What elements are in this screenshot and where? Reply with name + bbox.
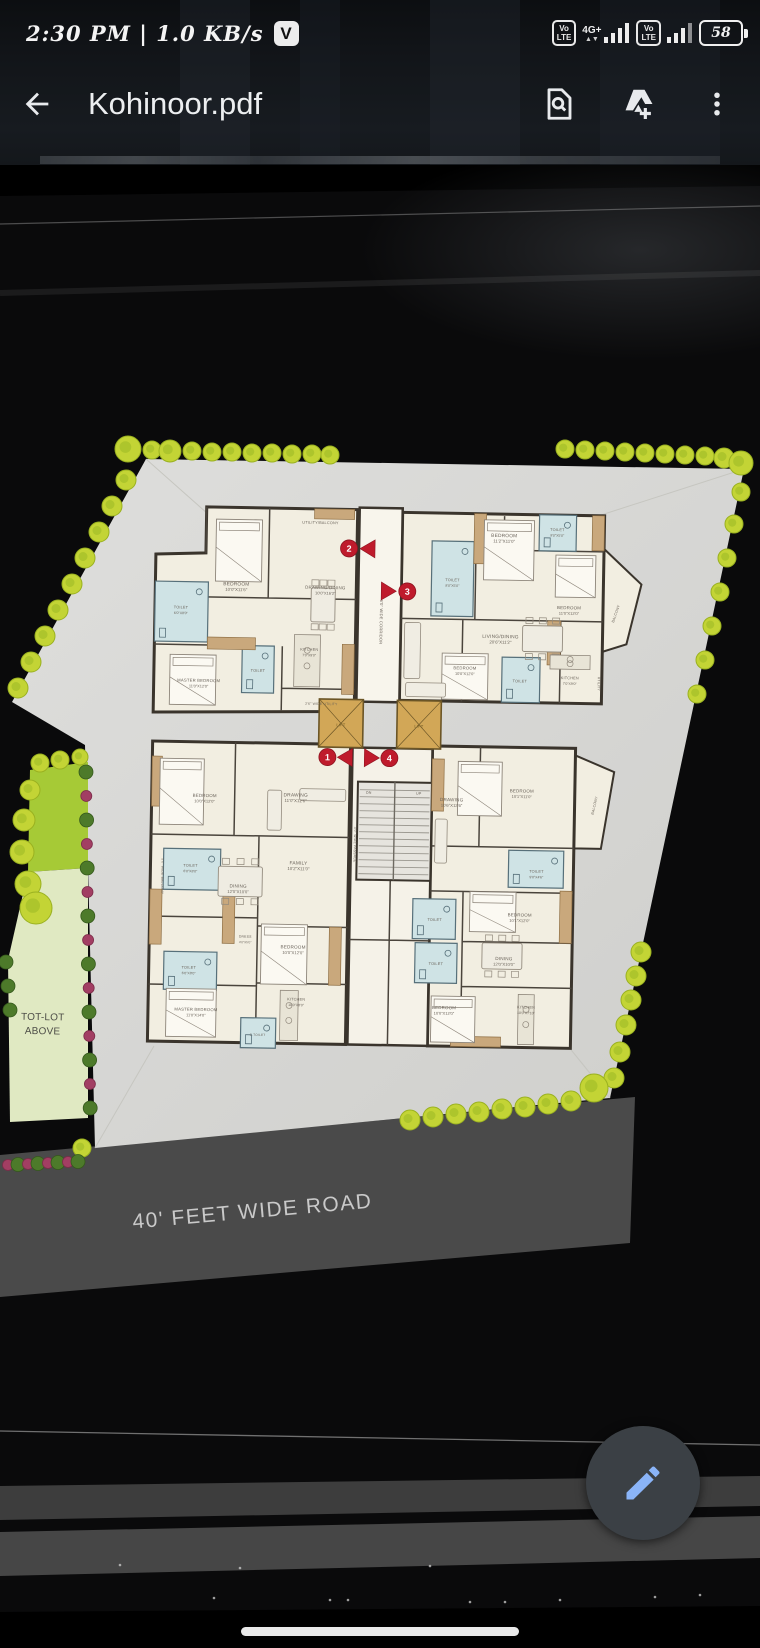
bush-icon: [3, 1003, 17, 1017]
flat-number: 4: [387, 753, 392, 763]
room-label: BEDROOM: [510, 788, 534, 793]
dimension-label: 10'0"X7'10": [517, 1011, 536, 1015]
tree-icon: [519, 1101, 528, 1110]
tree-icon: [146, 445, 154, 453]
flat-number: 2: [346, 544, 351, 554]
bush-icon: [82, 887, 93, 898]
wardrobe-strip: [559, 891, 572, 943]
dining-table-icon: [522, 625, 562, 652]
tree-icon: [706, 621, 714, 629]
tree-icon: [93, 526, 102, 535]
room-label: BEDROOM: [280, 944, 305, 949]
overflow-menu-icon: [702, 87, 732, 121]
back-button[interactable]: [20, 87, 54, 121]
dimension-label: 10'0"X16'2": [315, 590, 336, 595]
add-to-drive-button[interactable]: [620, 85, 658, 123]
bush-icon: [83, 1101, 97, 1115]
room-label: DRAWING: [440, 797, 464, 802]
tree-icon: [79, 552, 88, 561]
bush-icon: [83, 935, 94, 946]
room-label: 5'0" WIDE BALCONY: [160, 858, 165, 895]
sofa-icon: [405, 682, 445, 697]
room-label: BEDROOM: [557, 605, 581, 610]
tree-icon: [324, 450, 332, 458]
tree-icon: [306, 449, 314, 457]
dimension-label: 10'0"X12'0": [434, 1011, 455, 1016]
bush-icon: [80, 813, 94, 827]
tree-icon: [721, 553, 729, 561]
dimension-label: 6'0"X8'0": [183, 869, 198, 873]
tree-icon: [17, 813, 27, 823]
dust-speck: [213, 1597, 216, 1600]
bush-icon: [71, 1155, 85, 1169]
edit-fab-button[interactable]: [586, 1426, 700, 1540]
battery-icon: 58: [699, 20, 748, 46]
dimension-label: 8'0"X5'0": [550, 534, 565, 538]
dimension-label: 10'0"X12'0": [455, 672, 475, 676]
volte-badge-sim2: VoLTE: [636, 20, 661, 46]
room-label: UTILITY: [597, 677, 601, 692]
notification-badge-icon: V: [274, 21, 299, 46]
back-arrow-icon: [20, 87, 54, 121]
dimension-label: 10'0"X12'0": [282, 950, 304, 955]
tree-icon: [473, 1106, 482, 1115]
tree-icon: [699, 655, 707, 663]
dimension-label: 10'1"X11'0": [512, 794, 533, 799]
room-label: TOILET: [445, 578, 460, 582]
room-label: DINING: [229, 883, 247, 888]
data-type-label: 4G+: [582, 26, 601, 36]
room-label: 4'0" WIDE PASSAGE: [353, 827, 358, 863]
tree-icon: [639, 448, 647, 456]
dimension-label: 8'0"X5'0": [445, 584, 460, 588]
tree-icon: [691, 689, 699, 697]
tree-icon: [630, 970, 639, 979]
tree-icon: [728, 519, 736, 527]
bush-icon: [1, 979, 15, 993]
dimension-label: 7'0"X9'0": [563, 682, 578, 686]
sofa-icon: [267, 790, 282, 830]
dimension-label: 10'0"X11'6": [225, 587, 248, 592]
room-label: KITCHEN: [300, 648, 318, 652]
wardrobe-strip: [315, 509, 355, 520]
tree-icon: [608, 1072, 617, 1081]
tree-icon: [14, 845, 25, 856]
tree-icon: [286, 449, 294, 457]
room-label: 2'6" WIDE UTILITY: [305, 702, 338, 707]
tree-icon: [76, 1143, 84, 1151]
tree-icon: [34, 758, 42, 766]
bed-icon: [457, 761, 502, 816]
signal-bars-icon: [604, 23, 630, 43]
room-label: KITCHEN: [561, 676, 579, 680]
tree-icon: [427, 1111, 436, 1120]
room-label: TOILET: [529, 870, 544, 874]
bush-icon: [84, 1079, 95, 1090]
dimension-label: 6'0"X8'0": [174, 611, 189, 615]
dust-speck: [119, 1564, 122, 1567]
document-title: Kohinoor.pdf: [88, 86, 540, 122]
dimension-label: 10'6"X12'6": [441, 803, 463, 808]
tree-icon: [450, 1108, 459, 1117]
room-label: UP: [416, 792, 422, 796]
status-bar: 2:30 PM | 1.0 KB/s V VoLTE 4G+ ▲▼ VoLTE: [0, 0, 760, 52]
bush-icon: [83, 983, 94, 994]
pdf-page-canvas[interactable]: 40' FEET WIDE ROAD: [0, 0, 760, 1648]
find-in-document-icon: [540, 86, 576, 122]
tree-icon: [52, 604, 61, 613]
phone-screen: 40' FEET WIDE ROAD: [0, 0, 760, 1648]
bush-icon: [83, 1053, 97, 1067]
bush-icon: [82, 1005, 96, 1019]
signal-bars-sim1: 4G+ ▲▼: [582, 23, 630, 43]
overflow-menu-button[interactable]: [702, 87, 732, 121]
dimension-label: 12'0"X10'0": [493, 962, 515, 967]
gesture-pill[interactable]: [241, 1627, 519, 1636]
dust-speck: [347, 1599, 350, 1602]
tree-icon: [226, 447, 234, 455]
dust-speck: [239, 1567, 242, 1570]
wardrobe-strip: [328, 927, 341, 985]
wardrobe-strip: [207, 637, 255, 650]
tree-icon: [120, 441, 132, 453]
dimension-label: 7'0"X9'0": [302, 653, 317, 657]
tot-lot-lawn-upper: [28, 762, 88, 872]
bed-icon: [555, 555, 596, 598]
room-label: LIFT: [336, 722, 345, 727]
room-label: TOILET: [429, 962, 444, 966]
tree-icon: [25, 656, 34, 665]
battery-percent: 58: [699, 20, 743, 46]
tree-icon: [714, 587, 722, 595]
tree-icon: [206, 447, 214, 455]
room-label: BEDROOM: [453, 665, 476, 670]
dimension-label: 9'0"X4'6": [529, 875, 544, 879]
flat-number: 1: [325, 752, 330, 762]
tree-icon: [75, 752, 82, 759]
room-label: TOILET: [550, 528, 565, 532]
dimension-label: 4'0"X5'0": [239, 940, 251, 944]
data-activity-arrows-icon: ▲▼: [585, 36, 599, 43]
bed-icon: [215, 519, 262, 582]
bed-icon: [159, 758, 204, 825]
tree-icon: [26, 898, 40, 912]
sofa-icon: [404, 622, 421, 678]
bush-icon: [81, 839, 92, 850]
tree-icon: [404, 1114, 413, 1123]
tree-icon: [163, 444, 173, 454]
dust-speck: [429, 1565, 432, 1568]
bed-icon: [441, 653, 488, 700]
tree-icon: [12, 682, 21, 691]
dust-speck: [504, 1601, 507, 1604]
room-label: ABOVE: [25, 1026, 61, 1038]
tree-icon: [735, 487, 743, 495]
tree-icon: [733, 456, 744, 467]
dimension-label: 10'0"X8'0": [288, 1003, 305, 1007]
room-label: 6'0" WIDE CORRIDOR: [378, 600, 384, 645]
bed-icon: [430, 996, 475, 1043]
tree-icon: [106, 500, 115, 509]
tree-icon: [585, 1080, 598, 1093]
tree-icon: [20, 876, 32, 888]
dust-speck: [469, 1601, 472, 1604]
bush-icon: [81, 791, 92, 802]
tree-icon: [542, 1098, 551, 1107]
bush-icon: [81, 909, 95, 923]
app-bar: Kohinoor.pdf: [0, 52, 760, 156]
wardrobe-strip: [149, 889, 162, 944]
tree-icon: [579, 445, 587, 453]
dust-speck: [654, 1596, 657, 1599]
dimension-label: 11'0"X12'0": [189, 684, 209, 688]
tree-icon: [635, 946, 644, 955]
tree-icon: [679, 450, 687, 458]
dimension-label: 12'0"X10'0": [227, 889, 249, 894]
room-label: UTILITY/BALCONY: [302, 521, 339, 526]
tree-icon: [266, 448, 274, 456]
dimension-label: 10'2"X11'0": [287, 866, 310, 871]
bush-icon: [0, 955, 13, 969]
dimension-label: 11'2"X11'0": [493, 539, 515, 544]
room-label: TOILET: [183, 864, 198, 868]
room-label: BEDROOM: [193, 793, 217, 798]
dimension-label: 6'0"X8'0": [182, 971, 197, 975]
room-label: DINING: [495, 956, 513, 961]
room-label: BEDROOM: [508, 912, 532, 917]
edit-pen-icon: [621, 1461, 665, 1505]
volte-badge-sim1: VoLTE: [552, 20, 577, 46]
dimension-label: 11'0"X12'6": [285, 798, 308, 803]
add-to-drive-icon: [620, 85, 658, 123]
find-in-document-button[interactable]: [540, 86, 576, 122]
building-photo-strip: [40, 156, 720, 164]
room-label: LIFT: [414, 724, 423, 729]
tree-icon: [39, 630, 48, 639]
tree-icon: [246, 448, 254, 456]
kitchen-counter: [517, 994, 534, 1044]
tree-icon: [120, 474, 129, 483]
room-label: DRAWING/DINING: [305, 585, 346, 591]
bush-icon: [79, 765, 93, 779]
sofa-icon: [435, 819, 448, 863]
bush-icon: [81, 957, 95, 971]
room-label: TOILET: [251, 669, 266, 673]
tree-icon: [620, 1019, 629, 1028]
bush-icon: [84, 1031, 95, 1042]
room-label: TOT-LOT: [21, 1012, 65, 1024]
tree-icon: [496, 1103, 505, 1112]
flat-number: 3: [405, 587, 410, 597]
kitchen-counter: [294, 634, 321, 686]
room-label: DN: [366, 791, 372, 795]
tree-icon: [718, 452, 727, 461]
room-label: TOILET: [427, 918, 442, 922]
signal-bars-icon-2: [667, 23, 693, 43]
room-label: MASTER BEDROOM: [174, 1006, 217, 1012]
room-label: TOILET: [512, 679, 527, 683]
dimension-label: 11'0"X12'0": [559, 611, 580, 616]
dust-speck: [699, 1594, 702, 1597]
dust-speck: [559, 1599, 562, 1602]
tree-icon: [659, 449, 667, 457]
wardrobe-strip: [341, 644, 354, 694]
room-label: TOILET: [174, 605, 189, 609]
tree-icon: [699, 451, 707, 459]
tree-icon: [559, 444, 567, 452]
tree-icon: [186, 446, 194, 454]
room-label: KITCHEN: [287, 997, 305, 1001]
status-time-speed: 2:30 PM | 1.0 KB/s: [26, 21, 264, 46]
dimension-label: 10'1"X12'0": [509, 918, 530, 923]
bed-icon: [484, 520, 535, 581]
dust-speck: [329, 1599, 332, 1602]
room-label: KITCHEN: [517, 1005, 535, 1009]
tree-icon: [619, 447, 627, 455]
dimension-label: 10'0"X12'0": [194, 798, 215, 803]
room-label: C.TOILET: [250, 1033, 266, 1037]
bush-icon: [80, 861, 94, 875]
room-label: DRESS: [239, 935, 252, 939]
room-label: MASTER BEDROOM: [177, 677, 220, 683]
dimension-label: 20'6"X11'2": [489, 639, 512, 644]
tree-icon: [599, 446, 607, 454]
tree-icon: [614, 1046, 623, 1055]
tree-icon: [24, 784, 33, 793]
dimension-label: 11'0"X14'0": [186, 1013, 206, 1017]
room-label: TOILET: [181, 966, 196, 970]
tree-icon: [66, 578, 75, 587]
tree-icon: [565, 1095, 574, 1104]
tree-icon: [54, 755, 62, 763]
room-label: BEDROOM: [432, 1005, 456, 1010]
tree-icon: [625, 994, 634, 1003]
wardrobe-strip: [592, 516, 605, 551]
